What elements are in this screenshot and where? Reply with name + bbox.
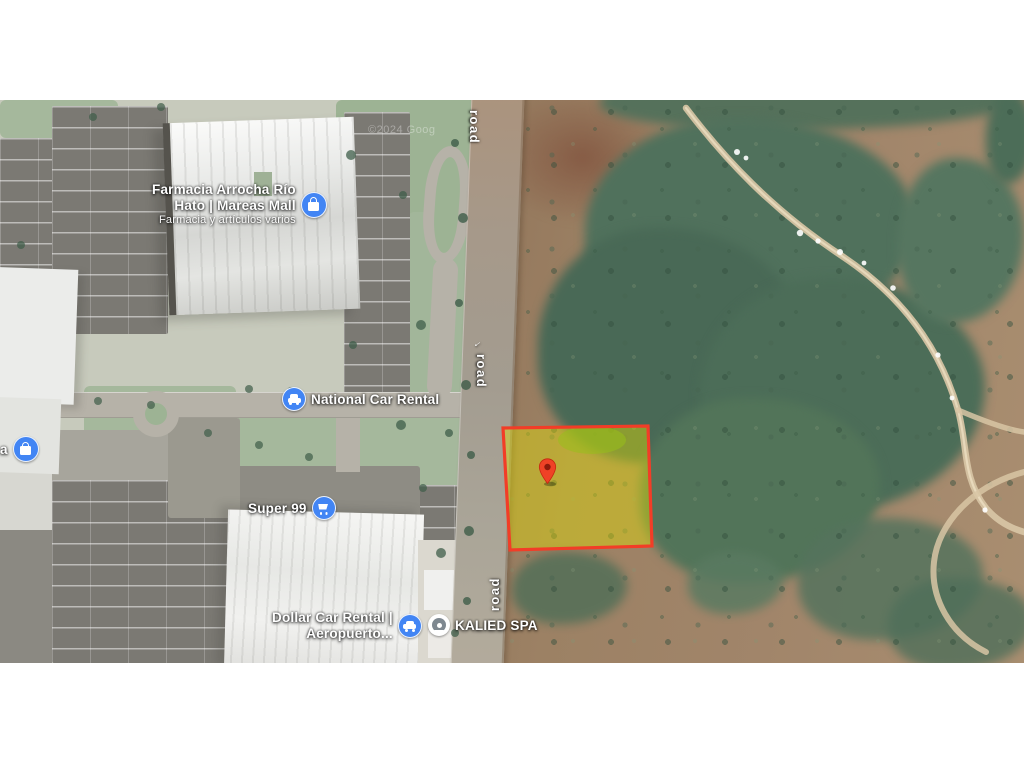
car-rental-icon	[398, 614, 422, 638]
road-label-top: road	[467, 110, 482, 144]
poi-national-car-rental[interactable]: National Car Rental	[282, 387, 439, 411]
poi-label-text: Farmacia Arrocha Río Hato | Mareas Mall …	[152, 182, 296, 227]
poi-edge-partial[interactable]: a	[0, 436, 39, 462]
shopping-bag-icon	[13, 436, 39, 462]
poi-dollar-car-rental[interactable]: Dollar Car Rental | Aeropuerto...	[272, 610, 422, 641]
shopping-bag-icon	[301, 192, 327, 218]
satellite-map[interactable]: ©2024 Goog road ← road road Farmacia Arr…	[0, 100, 1024, 663]
poi-title-line1: Dollar Car Rental |	[272, 610, 393, 625]
poi-subtitle: Farmacia y artículos varios	[152, 214, 296, 227]
poi-farmacia-mareas-mall[interactable]: Farmacia Arrocha Río Hato | Mareas Mall …	[152, 182, 327, 227]
poi-title: KALIED SPA	[455, 618, 538, 633]
shopping-cart-icon	[312, 496, 336, 520]
poi-label-text: Dollar Car Rental | Aeropuerto...	[272, 610, 393, 641]
poi-title-line1: Farmacia Arrocha Río	[152, 182, 296, 197]
dirt-path	[958, 410, 1024, 432]
poi-title: Super 99	[248, 501, 307, 516]
poi-title: National Car Rental	[311, 392, 439, 407]
poi-title-line2: Aeropuerto...	[306, 626, 393, 641]
poi-title-line2: Hato | Mareas Mall	[174, 198, 295, 213]
map-watermark: ©2024 Goog	[368, 124, 436, 136]
pin-shadow	[544, 482, 556, 486]
poi-kalied-spa[interactable]: KALIED SPA	[428, 614, 538, 636]
road-label-middle: road	[474, 354, 489, 388]
dirt-path	[686, 108, 1024, 532]
generic-place-icon	[428, 614, 450, 636]
parcel-boundary-polygon[interactable]	[503, 426, 652, 550]
page: ©2024 Goog road ← road road Farmacia Arr…	[0, 0, 1024, 768]
poi-title: a	[0, 442, 8, 457]
poi-super-99[interactable]: Super 99	[248, 496, 336, 520]
car-rental-icon	[282, 387, 306, 411]
dirt-path-track	[686, 108, 986, 508]
road-label-bottom: road	[487, 577, 502, 611]
